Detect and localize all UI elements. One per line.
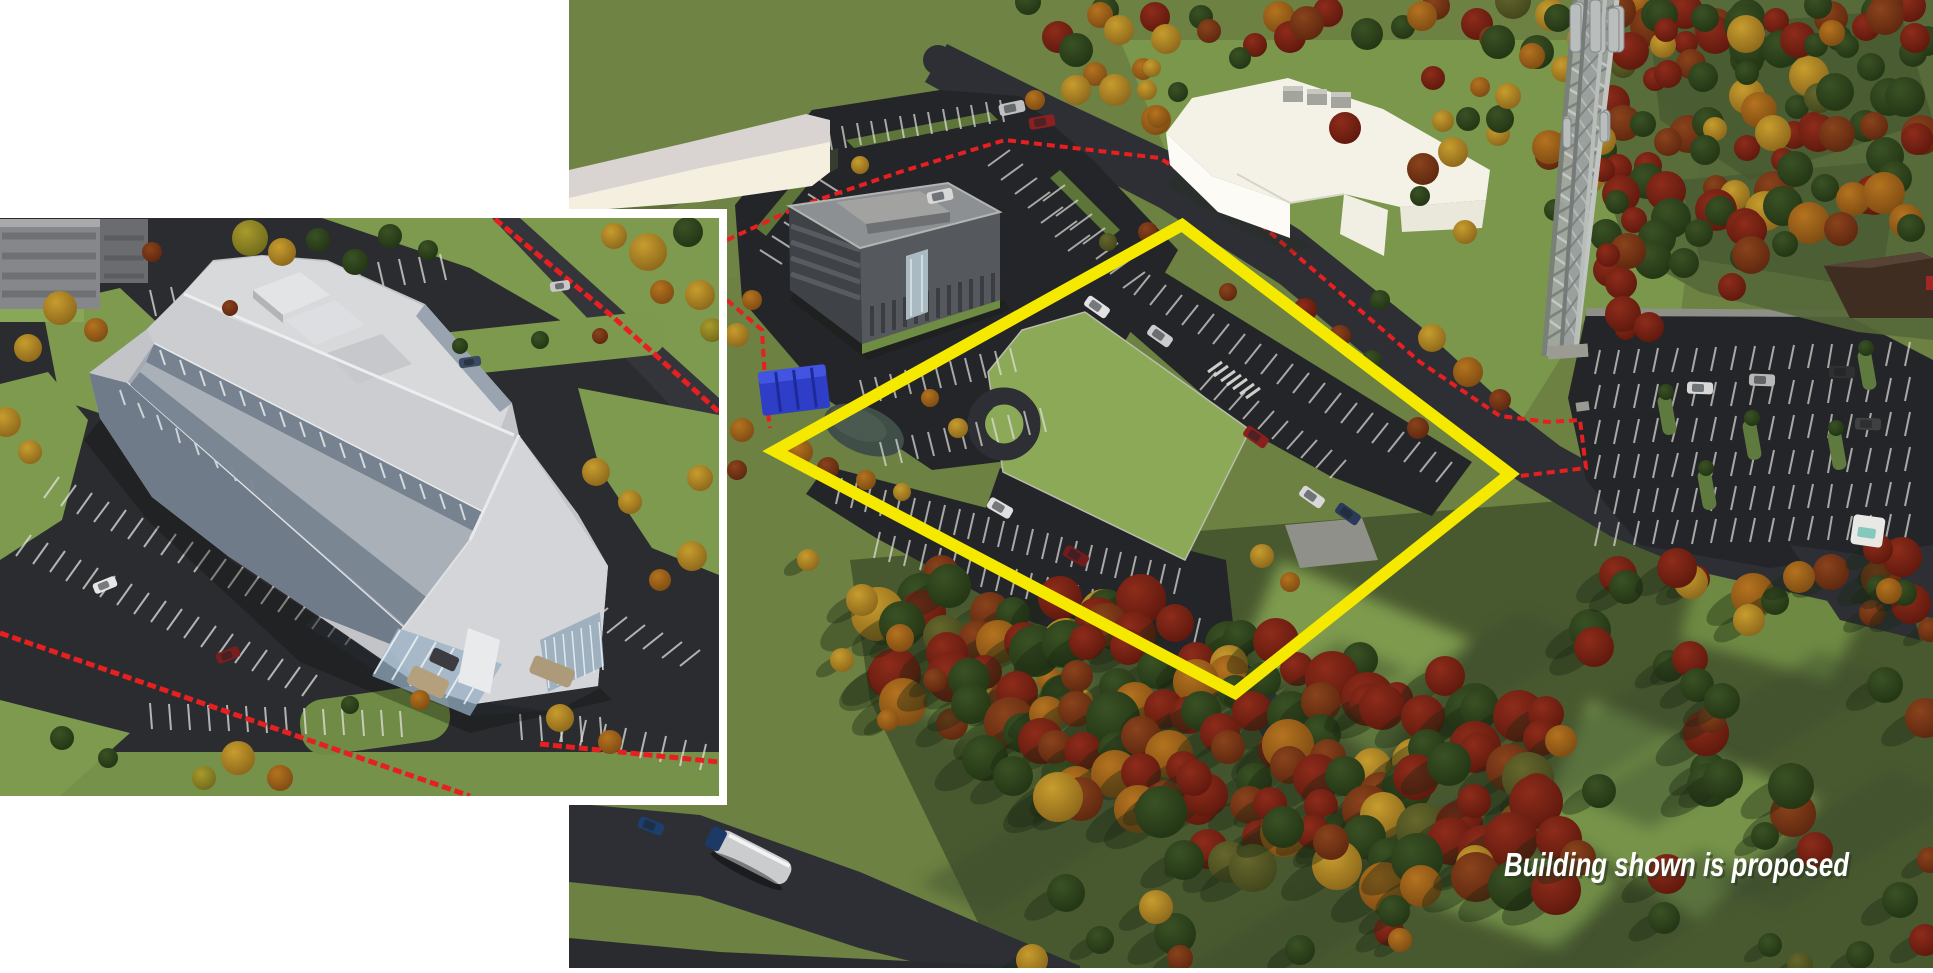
svg-text:Building shown is proposed: Building shown is proposed [1504, 846, 1850, 883]
